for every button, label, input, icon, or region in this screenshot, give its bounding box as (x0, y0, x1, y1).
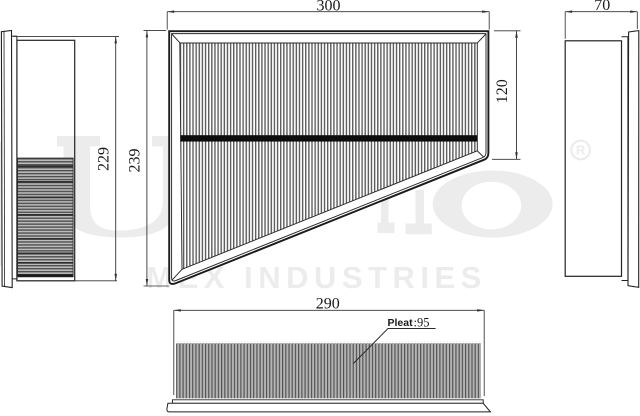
svg-text:Pleat: Pleat (388, 317, 414, 329)
svg-text:229: 229 (96, 147, 113, 171)
svg-text::95: :95 (414, 315, 430, 329)
svg-text:300: 300 (317, 0, 341, 14)
svg-text:239: 239 (127, 149, 144, 173)
svg-text:70: 70 (594, 0, 610, 14)
svg-text:R: R (576, 143, 586, 158)
svg-text:290: 290 (316, 295, 340, 312)
svg-text:120: 120 (494, 79, 511, 103)
